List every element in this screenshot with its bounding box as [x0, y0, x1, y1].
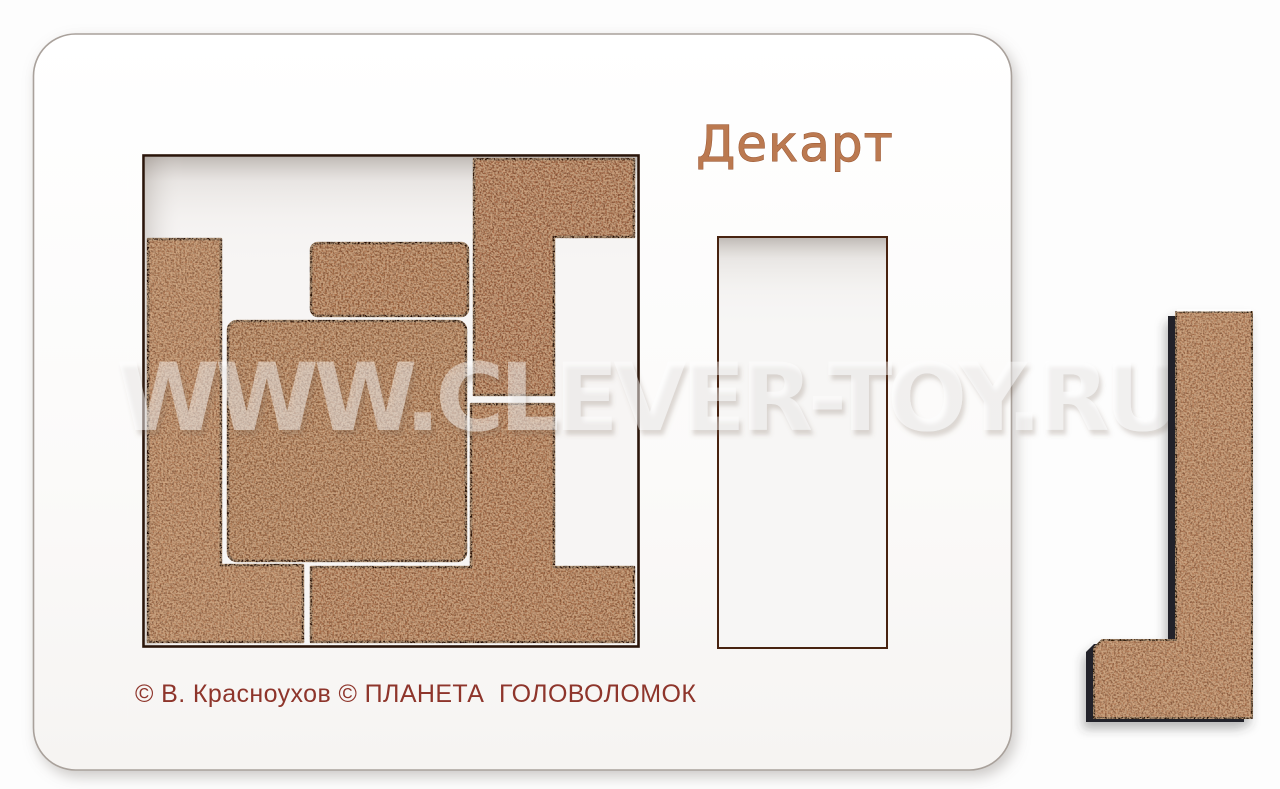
board-title: Декарт — [696, 115, 894, 173]
piece-horizontal-bar — [311, 243, 468, 316]
copyright-line: © В. Красноухов © ПЛАНЕТА ГОЛОВОЛОМОК — [135, 680, 696, 708]
watermark-text: WWW.CLEVER-TOY.RU — [116, 344, 1175, 453]
product-photo: Декарт © В. Красноухов © ПЛАНЕТА ГОЛОВОЛ… — [0, 0, 1280, 789]
photo-canvas: Декарт © В. Красноухов © ПЛАНЕТА ГОЛОВОЛ… — [0, 0, 1280, 789]
